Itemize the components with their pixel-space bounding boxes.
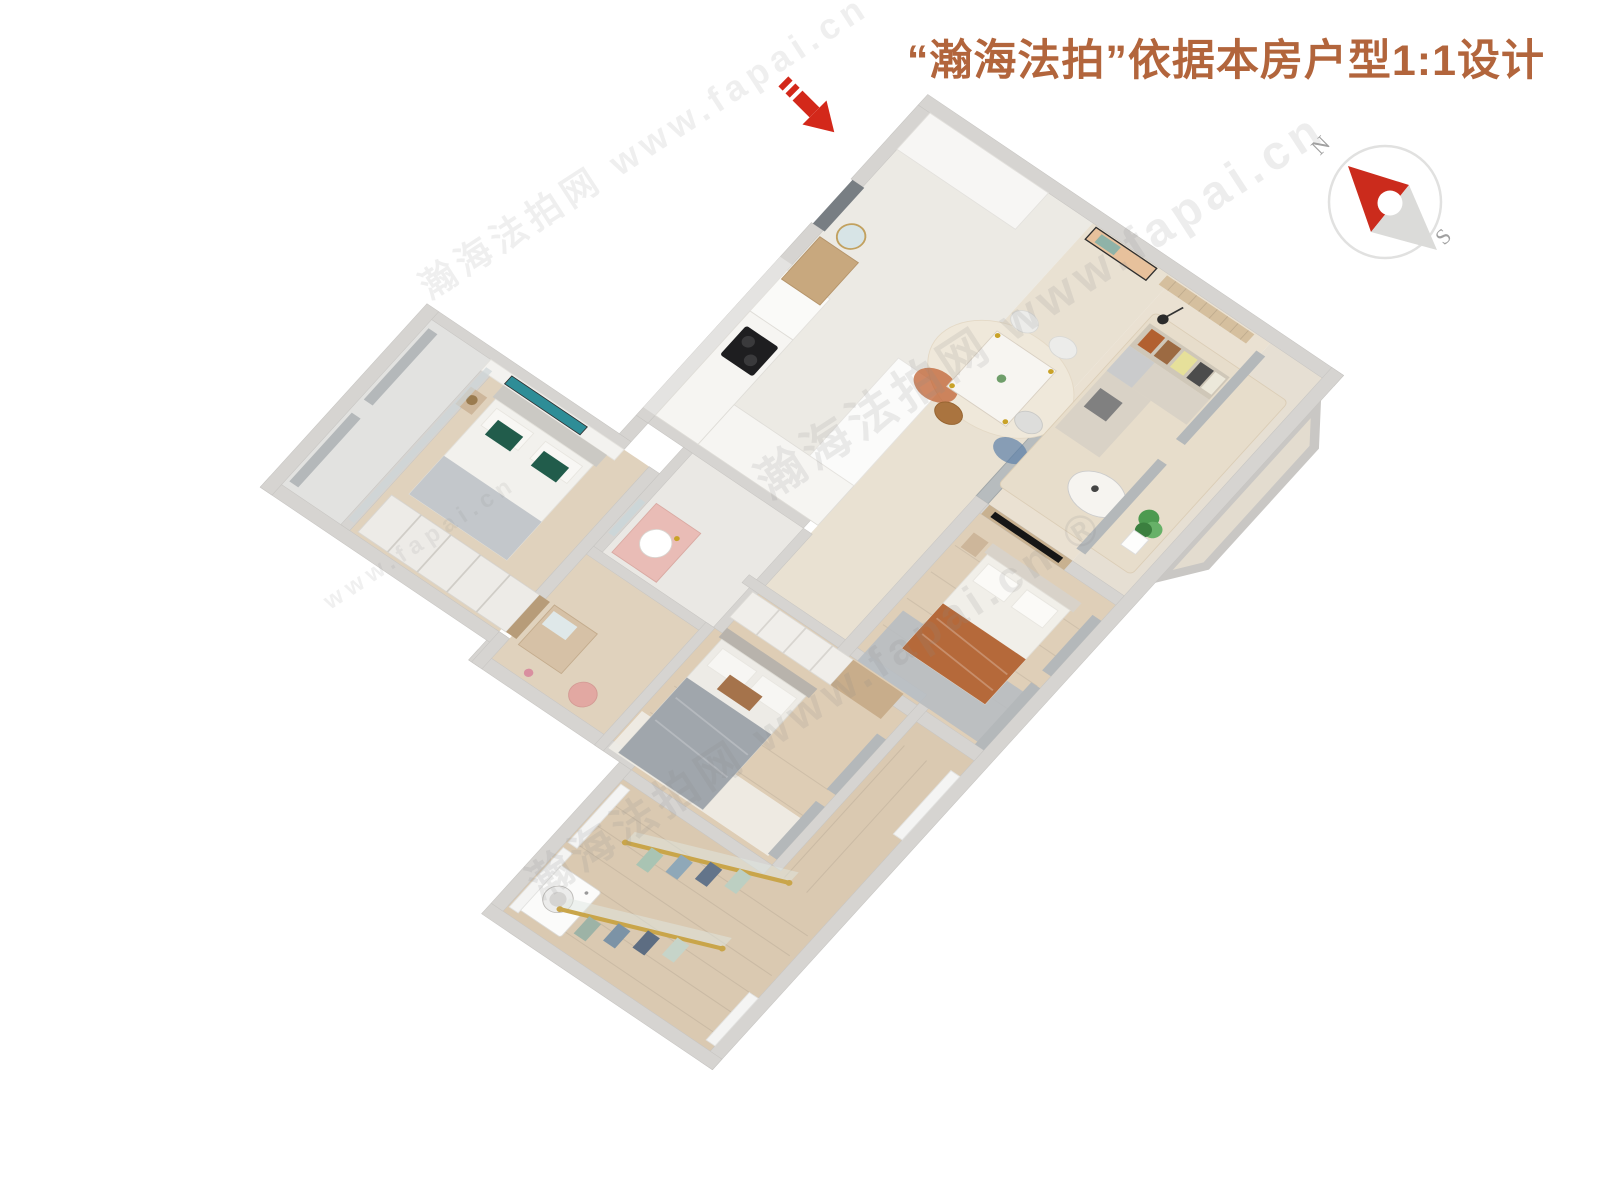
entrance-arrow-icon: [771, 69, 846, 144]
compass-icon: N S: [1306, 131, 1456, 258]
page-title: “瀚海法拍”依据本房户型1:1设计: [907, 26, 1545, 88]
floorplan-render: 瀚海法拍网 www.fapai.cn 瀚海法拍网 www.fapai.cn 瀚海…: [0, 0, 1600, 1200]
arrow-stripe: [785, 83, 799, 97]
apartment: [104, 0, 1366, 1085]
compass-hub: [1378, 191, 1403, 216]
screenshot-root: 瀚海法拍网 www.fapai.cn 瀚海法拍网 www.fapai.cn 瀚海…: [0, 0, 1600, 1200]
